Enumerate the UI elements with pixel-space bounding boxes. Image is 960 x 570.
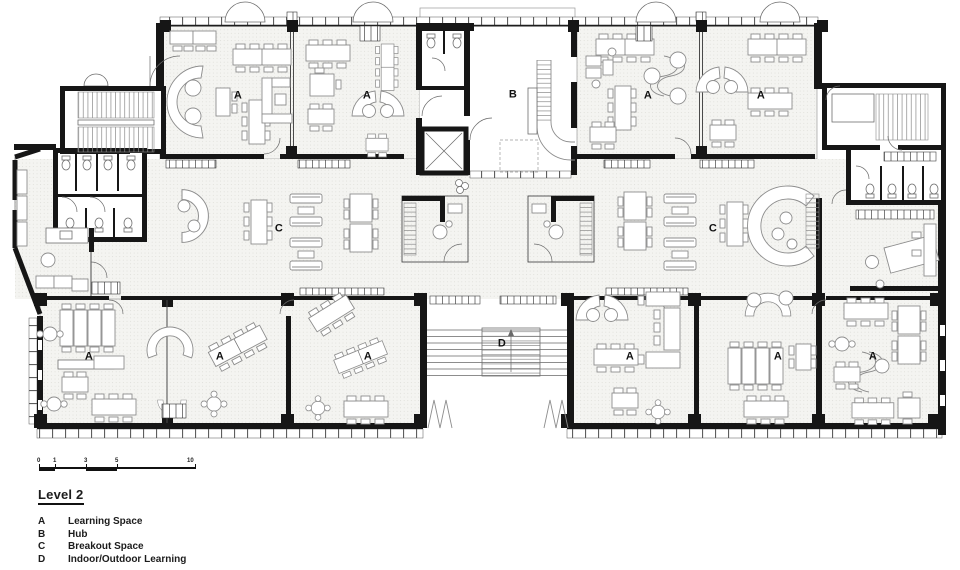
- legend-label: Breakout Space: [68, 541, 144, 552]
- legend-item-learning-space: ALearning Space: [38, 516, 186, 529]
- legend-key: C: [38, 541, 68, 554]
- legend-label: Learning Space: [68, 516, 142, 527]
- scale-bar-segment: [86, 469, 117, 472]
- floor-plan-page: AABAACCAAADAAA 0 1 3 5 10 Level 2 ALearn…: [0, 0, 960, 570]
- legend-item-indoor-outdoor-learning: DIndoor/Outdoor Learning: [38, 554, 186, 567]
- floor-plan-drawing: [0, 0, 960, 570]
- legend-label: Hub: [68, 529, 87, 540]
- scale-bar: 0 1 3 5 10: [39, 458, 196, 474]
- legend: Level 2 ALearning Space BHub CBreakout S…: [38, 486, 186, 566]
- legend-title: Level 2: [38, 487, 84, 505]
- legend-key: A: [38, 516, 68, 529]
- legend-rows: ALearning Space BHub CBreakout Space DIn…: [38, 516, 186, 566]
- scale-bar-segment: [39, 469, 55, 472]
- scale-tick-10: 10: [187, 458, 194, 464]
- legend-label: Indoor/Outdoor Learning: [68, 554, 186, 565]
- legend-key: B: [38, 529, 68, 542]
- legend-item-hub: BHub: [38, 529, 186, 542]
- legend-key: D: [38, 554, 68, 567]
- legend-item-breakout-space: CBreakout Space: [38, 541, 186, 554]
